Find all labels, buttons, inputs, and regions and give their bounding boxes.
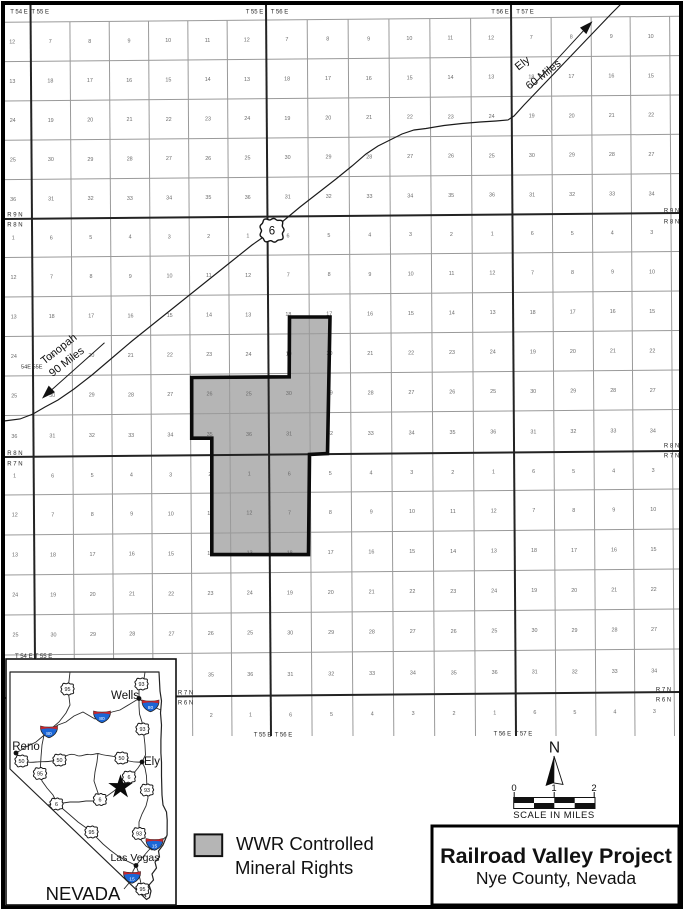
svg-text:6: 6 — [532, 469, 535, 475]
svg-text:7: 7 — [287, 273, 290, 279]
svg-text:9: 9 — [611, 270, 614, 276]
svg-text:5: 5 — [572, 469, 575, 475]
svg-text:20: 20 — [328, 590, 334, 596]
svg-text:25: 25 — [13, 633, 19, 639]
svg-text:25: 25 — [11, 393, 17, 399]
svg-text:16: 16 — [129, 552, 135, 558]
svg-text:80: 80 — [148, 705, 154, 711]
svg-text:R 6 N: R 6 N — [178, 701, 193, 707]
svg-text:1: 1 — [491, 232, 494, 238]
svg-text:R 9 N: R 9 N — [664, 209, 679, 215]
svg-text:9: 9 — [370, 510, 373, 516]
svg-text:19: 19 — [529, 114, 535, 120]
svg-text:25: 25 — [491, 629, 497, 635]
svg-text:28: 28 — [369, 630, 375, 636]
svg-text:35: 35 — [448, 193, 454, 199]
svg-text:17: 17 — [90, 552, 96, 558]
svg-text:30: 30 — [530, 389, 536, 395]
svg-text:36: 36 — [10, 197, 16, 203]
svg-text:20: 20 — [570, 349, 576, 355]
svg-text:31: 31 — [530, 429, 536, 435]
svg-text:12: 12 — [11, 275, 17, 281]
svg-text:28: 28 — [609, 152, 615, 158]
svg-text:50: 50 — [19, 759, 25, 765]
svg-text:34: 34 — [651, 669, 657, 675]
svg-text:27: 27 — [407, 154, 413, 160]
svg-text:18: 18 — [47, 79, 53, 85]
svg-text:2: 2 — [450, 232, 453, 238]
svg-text:8: 8 — [329, 510, 332, 516]
svg-text:7: 7 — [532, 508, 535, 514]
svg-text:T 55 E: T 55 E — [254, 733, 272, 739]
svg-text:29: 29 — [326, 155, 332, 161]
svg-text:30: 30 — [51, 632, 57, 638]
svg-text:13: 13 — [11, 314, 17, 320]
svg-text:18: 18 — [50, 552, 56, 558]
svg-text:23: 23 — [206, 352, 212, 358]
svg-text:80: 80 — [99, 716, 105, 722]
svg-text:7: 7 — [51, 512, 54, 518]
svg-text:1: 1 — [493, 711, 496, 717]
svg-text:T 56 E: T 56 E — [275, 733, 293, 739]
svg-text:16: 16 — [368, 550, 374, 556]
svg-text:9: 9 — [367, 36, 370, 42]
svg-text:4: 4 — [613, 709, 616, 715]
svg-text:16: 16 — [128, 313, 134, 319]
svg-text:6: 6 — [287, 233, 290, 239]
svg-text:7: 7 — [49, 39, 52, 45]
svg-text:29: 29 — [87, 157, 93, 163]
svg-text:R 7 N: R 7 N — [7, 462, 22, 468]
svg-text:34: 34 — [407, 193, 413, 199]
svg-text:13: 13 — [491, 549, 497, 555]
svg-text:95: 95 — [65, 687, 71, 693]
svg-text:31: 31 — [529, 192, 535, 198]
svg-text:6: 6 — [128, 775, 131, 781]
svg-text:10: 10 — [406, 36, 412, 42]
svg-text:5: 5 — [573, 710, 576, 716]
svg-text:33: 33 — [610, 429, 616, 435]
svg-text:1: 1 — [248, 472, 251, 478]
svg-text:13: 13 — [12, 553, 18, 559]
svg-text:5: 5 — [571, 231, 574, 237]
svg-text:N: N — [549, 740, 560, 757]
svg-text:50: 50 — [119, 756, 125, 762]
svg-text:5: 5 — [329, 471, 332, 477]
svg-text:12: 12 — [9, 40, 15, 46]
svg-text:33: 33 — [128, 433, 134, 439]
svg-text:11: 11 — [205, 38, 211, 44]
svg-text:7: 7 — [288, 510, 291, 516]
svg-text:36: 36 — [246, 432, 252, 438]
svg-text:26: 26 — [208, 631, 214, 637]
svg-text:18: 18 — [530, 310, 536, 316]
svg-text:55E: 55E — [33, 364, 43, 370]
svg-text:10: 10 — [409, 509, 415, 515]
svg-text:9: 9 — [368, 272, 371, 278]
svg-text:2: 2 — [453, 711, 456, 717]
svg-text:4: 4 — [370, 471, 373, 477]
svg-text:95: 95 — [89, 830, 95, 836]
svg-text:8: 8 — [571, 270, 574, 276]
svg-text:35: 35 — [205, 195, 211, 201]
svg-text:6: 6 — [50, 235, 53, 241]
svg-text:14: 14 — [449, 311, 455, 317]
svg-text:8: 8 — [572, 508, 575, 514]
svg-text:25: 25 — [489, 153, 495, 159]
svg-text:27: 27 — [167, 392, 173, 398]
svg-text:30: 30 — [287, 630, 293, 636]
svg-text:16: 16 — [611, 547, 617, 553]
svg-text:12: 12 — [488, 35, 494, 41]
svg-text:21: 21 — [609, 113, 615, 119]
svg-text:8: 8 — [91, 512, 94, 518]
svg-text:15: 15 — [168, 551, 174, 557]
svg-text:10: 10 — [408, 271, 414, 277]
svg-text:5: 5 — [327, 233, 330, 239]
svg-text:20: 20 — [90, 592, 96, 598]
svg-text:T 56 E: T 56 E — [491, 10, 509, 16]
svg-text:10: 10 — [650, 507, 656, 513]
svg-text:36: 36 — [490, 430, 496, 436]
svg-text:T 56 E: T 56 E — [494, 732, 512, 738]
svg-text:21: 21 — [366, 115, 372, 121]
svg-text:29: 29 — [570, 389, 576, 395]
svg-text:R 8 N: R 8 N — [7, 451, 22, 457]
svg-text:33: 33 — [127, 196, 133, 202]
svg-text:32: 32 — [572, 669, 578, 675]
svg-text:3: 3 — [169, 472, 172, 478]
svg-text:21: 21 — [129, 592, 135, 598]
svg-text:1: 1 — [492, 470, 495, 476]
svg-text:21: 21 — [610, 349, 616, 355]
svg-text:NEVADA: NEVADA — [46, 883, 121, 904]
svg-text:34: 34 — [167, 433, 173, 439]
svg-text:6: 6 — [533, 710, 536, 716]
svg-text:33: 33 — [612, 669, 618, 675]
svg-text:3: 3 — [650, 230, 653, 236]
svg-text:22: 22 — [167, 353, 173, 359]
svg-text:31: 31 — [286, 432, 292, 438]
svg-text:19: 19 — [531, 588, 537, 594]
svg-text:15: 15 — [649, 309, 655, 315]
svg-text:95: 95 — [140, 887, 146, 893]
svg-text:21: 21 — [611, 587, 617, 593]
svg-text:15: 15 — [408, 311, 414, 317]
svg-text:27: 27 — [648, 152, 654, 158]
svg-text:22: 22 — [651, 587, 657, 593]
svg-text:24: 24 — [247, 591, 253, 597]
svg-text:31: 31 — [287, 672, 293, 678]
svg-text:4: 4 — [371, 712, 374, 718]
svg-text:35: 35 — [451, 670, 457, 676]
svg-text:36: 36 — [489, 193, 495, 199]
svg-text:R 9 N: R 9 N — [7, 213, 22, 219]
svg-text:Nye County, Nevada: Nye County, Nevada — [476, 868, 636, 888]
svg-text:28: 28 — [366, 154, 372, 160]
svg-text:11: 11 — [450, 509, 456, 515]
svg-text:23: 23 — [208, 591, 214, 597]
svg-text:31: 31 — [49, 434, 55, 440]
svg-text:26: 26 — [448, 154, 454, 160]
svg-text:36: 36 — [245, 195, 251, 201]
svg-text:13: 13 — [9, 79, 15, 85]
svg-text:23: 23 — [450, 589, 456, 595]
svg-text:93: 93 — [140, 727, 146, 733]
svg-text:15: 15 — [165, 78, 171, 84]
svg-text:17: 17 — [87, 78, 93, 84]
svg-text:25: 25 — [247, 631, 253, 637]
svg-text:6: 6 — [269, 225, 275, 237]
svg-text:93: 93 — [144, 788, 150, 794]
svg-text:12: 12 — [245, 273, 251, 279]
svg-text:34: 34 — [650, 428, 656, 434]
svg-text:24: 24 — [10, 118, 16, 124]
svg-text:23: 23 — [448, 114, 454, 120]
svg-text:29: 29 — [90, 632, 96, 638]
svg-text:17: 17 — [328, 550, 334, 556]
svg-text:25: 25 — [490, 389, 496, 395]
svg-text:50: 50 — [57, 758, 63, 764]
svg-text:9: 9 — [610, 34, 613, 40]
svg-text:26: 26 — [451, 629, 457, 635]
svg-text:15: 15 — [152, 843, 158, 849]
svg-text:35: 35 — [208, 673, 214, 679]
svg-text:20: 20 — [325, 115, 331, 121]
svg-text:25: 25 — [10, 158, 16, 164]
svg-text:10: 10 — [168, 511, 174, 517]
svg-text:Mineral Rights: Mineral Rights — [235, 857, 353, 878]
svg-text:30: 30 — [529, 153, 535, 159]
svg-text:R 8 N: R 8 N — [664, 220, 679, 226]
svg-text:4: 4 — [611, 230, 614, 236]
svg-text:10: 10 — [648, 34, 654, 40]
svg-text:33: 33 — [368, 431, 374, 437]
svg-text:T 57 E: T 57 E — [515, 732, 533, 738]
svg-text:15: 15 — [407, 75, 413, 81]
svg-text:8: 8 — [326, 37, 329, 43]
svg-text:20: 20 — [569, 113, 575, 119]
svg-text:R 7 N: R 7 N — [178, 691, 193, 697]
svg-text:4: 4 — [368, 233, 371, 239]
svg-text:24: 24 — [491, 589, 497, 595]
svg-text:13: 13 — [245, 312, 251, 318]
svg-text:T 56 E: T 56 E — [271, 10, 289, 16]
svg-text:22: 22 — [166, 117, 172, 123]
svg-text:8: 8 — [328, 272, 331, 278]
svg-text:3: 3 — [653, 709, 656, 715]
svg-text:14: 14 — [450, 549, 456, 555]
svg-text:16: 16 — [366, 76, 372, 82]
svg-text:27: 27 — [166, 156, 172, 162]
svg-text:31: 31 — [48, 197, 54, 203]
svg-text:29: 29 — [572, 628, 578, 634]
svg-text:Las Vegas: Las Vegas — [110, 852, 159, 864]
svg-text:8: 8 — [88, 39, 91, 45]
svg-text:34: 34 — [410, 671, 416, 677]
svg-text:11: 11 — [447, 36, 453, 42]
svg-text:28: 28 — [128, 392, 134, 398]
svg-text:14: 14 — [448, 75, 454, 81]
svg-text:54E: 54E — [21, 364, 31, 370]
svg-text:29: 29 — [569, 153, 575, 159]
svg-text:7: 7 — [285, 37, 288, 43]
svg-text:12: 12 — [12, 513, 18, 519]
svg-text:7: 7 — [50, 275, 53, 281]
svg-text:80: 80 — [46, 731, 52, 737]
svg-text:6: 6 — [288, 471, 291, 477]
svg-text:8: 8 — [90, 274, 93, 280]
svg-text:30: 30 — [48, 157, 54, 163]
svg-text:6: 6 — [531, 231, 534, 237]
svg-text:13: 13 — [490, 310, 496, 316]
svg-text:19: 19 — [530, 349, 536, 355]
svg-text:12: 12 — [491, 509, 497, 515]
svg-text:2: 2 — [207, 234, 210, 240]
svg-text:36: 36 — [11, 434, 17, 440]
svg-text:7: 7 — [531, 270, 534, 276]
svg-text:23: 23 — [449, 350, 455, 356]
svg-text:R 7 N: R 7 N — [664, 454, 679, 460]
svg-text:25: 25 — [246, 391, 252, 397]
svg-text:18: 18 — [284, 77, 290, 83]
svg-text:24: 24 — [12, 593, 18, 599]
svg-text:17: 17 — [570, 310, 576, 316]
svg-text:28: 28 — [129, 632, 135, 638]
svg-text:Reno: Reno — [12, 741, 40, 753]
svg-text:25: 25 — [245, 155, 251, 161]
svg-text:17: 17 — [568, 74, 574, 80]
svg-text:3: 3 — [409, 232, 412, 238]
svg-text:20: 20 — [571, 588, 577, 594]
svg-text:3: 3 — [412, 711, 415, 717]
svg-text:27: 27 — [651, 627, 657, 633]
svg-text:20: 20 — [87, 118, 93, 124]
svg-text:32: 32 — [569, 192, 575, 198]
svg-text:5: 5 — [91, 473, 94, 479]
svg-text:30: 30 — [285, 155, 291, 161]
svg-text:17: 17 — [88, 314, 94, 320]
svg-text:R 8 N: R 8 N — [664, 444, 679, 450]
svg-text:27: 27 — [169, 631, 175, 637]
svg-text:6: 6 — [55, 802, 58, 808]
svg-text:9: 9 — [130, 512, 133, 518]
svg-text:16: 16 — [126, 78, 132, 84]
svg-text:6: 6 — [99, 797, 102, 803]
svg-text:34: 34 — [409, 430, 415, 436]
svg-text:27: 27 — [650, 388, 656, 394]
svg-text:1: 1 — [12, 236, 15, 242]
svg-text:T 54 E: T 54 E — [10, 10, 28, 16]
svg-text:34: 34 — [166, 196, 172, 202]
svg-text:24: 24 — [489, 114, 495, 120]
svg-text:5: 5 — [89, 235, 92, 241]
svg-text:23: 23 — [205, 117, 211, 123]
svg-text:Ely: Ely — [144, 756, 160, 768]
svg-text:SCALE IN MILES: SCALE IN MILES — [513, 810, 594, 821]
svg-text:26: 26 — [207, 392, 213, 398]
svg-text:10: 10 — [649, 269, 655, 275]
svg-text:Wells: Wells — [111, 690, 139, 702]
svg-text:19: 19 — [284, 116, 290, 122]
svg-text:R 6 N: R 6 N — [656, 698, 671, 704]
svg-text:93: 93 — [136, 831, 142, 837]
svg-text:22: 22 — [648, 113, 654, 119]
svg-text:13: 13 — [488, 75, 494, 81]
svg-text:3: 3 — [410, 470, 413, 476]
svg-text:22: 22 — [168, 591, 174, 597]
svg-text:28: 28 — [127, 157, 133, 163]
svg-text:6: 6 — [289, 712, 292, 718]
svg-text:5: 5 — [330, 712, 333, 718]
svg-text:7: 7 — [530, 35, 533, 41]
svg-text:21: 21 — [127, 117, 133, 123]
svg-text:29: 29 — [89, 393, 95, 399]
svg-text:16: 16 — [610, 309, 616, 315]
svg-text:21: 21 — [367, 351, 373, 357]
svg-text:17: 17 — [325, 76, 331, 82]
svg-text:9: 9 — [128, 39, 131, 45]
svg-text:26: 26 — [449, 390, 455, 396]
svg-text:10: 10 — [167, 274, 173, 280]
svg-text:30: 30 — [286, 391, 292, 397]
svg-text:24: 24 — [490, 350, 496, 356]
svg-text:19: 19 — [48, 118, 54, 124]
svg-text:T 57 E: T 57 E — [516, 10, 534, 16]
svg-text:32: 32 — [326, 194, 332, 200]
svg-text:24: 24 — [246, 352, 252, 358]
svg-text:36: 36 — [247, 672, 253, 678]
svg-text:3: 3 — [168, 234, 171, 240]
svg-text:15: 15 — [129, 876, 135, 882]
svg-text:32: 32 — [328, 671, 334, 677]
svg-text:35: 35 — [450, 430, 456, 436]
svg-text:15: 15 — [651, 547, 657, 553]
svg-text:9: 9 — [129, 274, 132, 280]
svg-text:1: 1 — [249, 713, 252, 719]
svg-text:31: 31 — [532, 670, 538, 676]
svg-text:16: 16 — [367, 311, 373, 317]
svg-text:34: 34 — [649, 191, 655, 197]
svg-text:26: 26 — [205, 156, 211, 162]
svg-text:12: 12 — [489, 271, 495, 277]
svg-text:21: 21 — [128, 353, 134, 359]
svg-text:28: 28 — [612, 627, 618, 633]
svg-text:2: 2 — [451, 470, 454, 476]
svg-text:22: 22 — [409, 589, 415, 595]
svg-text:R 7 N: R 7 N — [656, 688, 671, 694]
svg-text:32: 32 — [89, 433, 95, 439]
svg-text:19: 19 — [50, 592, 56, 598]
svg-text:4: 4 — [130, 473, 133, 479]
svg-text:6: 6 — [51, 473, 54, 479]
svg-text:13: 13 — [244, 77, 250, 83]
svg-text:27: 27 — [410, 629, 416, 635]
svg-text:33: 33 — [367, 194, 373, 200]
svg-text:9: 9 — [612, 507, 615, 513]
svg-text:93: 93 — [139, 682, 145, 688]
svg-text:10: 10 — [165, 38, 171, 44]
svg-text:19: 19 — [287, 590, 293, 596]
svg-text:8: 8 — [570, 35, 573, 41]
svg-text:11: 11 — [449, 271, 455, 277]
svg-text:33: 33 — [609, 192, 615, 198]
svg-text:18: 18 — [531, 548, 537, 554]
svg-text:24: 24 — [11, 354, 17, 360]
svg-text:29: 29 — [328, 630, 334, 636]
svg-text:16: 16 — [608, 74, 614, 80]
svg-text:3: 3 — [652, 468, 655, 474]
